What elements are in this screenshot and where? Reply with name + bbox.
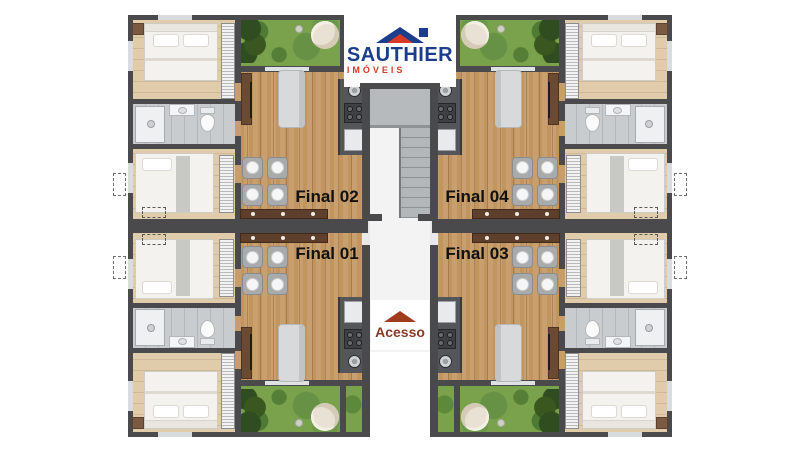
wardrobe: [566, 239, 581, 297]
stairwell-wall: [430, 89, 438, 437]
sink-bowl: [613, 107, 622, 114]
toilet-tank: [200, 107, 215, 114]
garden-shrubs: [237, 17, 267, 63]
access-label: Acesso: [375, 324, 425, 340]
unit-door-frame: [370, 214, 382, 221]
sofa-back: [495, 71, 501, 127]
pillow: [153, 405, 179, 418]
stove-burner: [438, 106, 444, 112]
wardrobe: [565, 23, 579, 99]
garden-shrubs: [237, 389, 267, 435]
bed-blanket-fold: [145, 391, 217, 394]
shower: [635, 309, 665, 346]
toilet: [199, 319, 216, 345]
pillow: [183, 405, 209, 418]
tv-screen: [250, 334, 252, 370]
shower-drain: [645, 120, 653, 128]
place-setting: [246, 161, 259, 174]
ac-indoor-unit-symbol: [142, 234, 166, 245]
roof-inner-shape: [387, 34, 413, 43]
access-arrow-icon: [384, 311, 416, 322]
decor-item: [281, 212, 285, 216]
sofa-back: [299, 71, 305, 127]
bathroom-sink: [169, 104, 195, 116]
refrigerator: [435, 129, 456, 151]
toilet: [584, 319, 601, 345]
pillow: [628, 158, 658, 171]
interior-wall: [562, 144, 672, 149]
stove-burner: [438, 340, 444, 346]
ac-condenser-symbol: [674, 256, 687, 279]
single-bed: [135, 239, 214, 299]
tv-panel: [548, 73, 559, 125]
interior-wall: [562, 303, 672, 308]
decor-item: [485, 212, 489, 216]
decor-item: [485, 236, 489, 240]
stove-burner: [447, 332, 453, 338]
garden-lounge-chair: [461, 403, 489, 431]
door-opening: [559, 316, 565, 331]
pillow: [183, 34, 209, 47]
toilet-bowl: [200, 320, 215, 338]
double-bed: [144, 23, 218, 81]
pillow: [621, 34, 647, 47]
place-setting: [246, 278, 259, 291]
decor-item: [515, 212, 519, 216]
place-setting: [516, 161, 529, 174]
double-bed: [582, 371, 656, 429]
wardrobe: [565, 353, 579, 429]
decor-item: [545, 212, 549, 216]
sideboard: [240, 233, 328, 243]
bed-throw-blanket: [610, 240, 624, 296]
place-setting: [516, 278, 529, 291]
unit-label-final-04: Final 04: [427, 187, 527, 205]
stove-burner: [438, 114, 444, 120]
garden-extension: [346, 380, 362, 437]
nightstand: [132, 23, 144, 35]
unit-label-final-01: Final 01: [277, 244, 377, 262]
toilet: [199, 107, 216, 133]
stairwell-wall: [362, 89, 370, 437]
single-bed: [586, 239, 665, 299]
sofa-back: [495, 325, 501, 381]
toilet-tank: [585, 338, 600, 345]
bed-blanket-fold: [583, 58, 655, 61]
stove-burner: [447, 340, 453, 346]
place-setting: [541, 188, 554, 201]
shower-drain: [147, 324, 155, 332]
pillow: [142, 281, 172, 294]
garden-lounge-chair: [461, 21, 489, 49]
window: [667, 41, 672, 71]
bathroom-sink: [605, 104, 631, 116]
interior-wall: [128, 144, 238, 149]
unit-door-frame: [418, 214, 430, 221]
logo-wordmark: SAUTHIER IMÓVEIS: [347, 45, 453, 75]
toilet: [584, 107, 601, 133]
door-opening: [559, 121, 565, 136]
ac-indoor-unit-symbol: [634, 207, 658, 218]
stove-burner: [447, 106, 453, 112]
garden-lounge-chair: [311, 403, 339, 431]
toilet-tank: [585, 107, 600, 114]
pillow: [628, 281, 658, 294]
window: [128, 381, 133, 411]
garden-stool: [497, 25, 505, 33]
tv-panel: [241, 73, 252, 125]
garden-wall: [454, 380, 460, 437]
wardrobe: [219, 155, 234, 213]
logo-roof-icon: [372, 27, 428, 44]
tv-panel: [241, 327, 252, 379]
bed-throw-blanket: [610, 156, 624, 212]
sofa: [278, 324, 305, 382]
window: [158, 432, 192, 437]
pillow: [591, 34, 617, 47]
ac-condenser-symbol: [674, 173, 687, 196]
stove-burner: [347, 106, 353, 112]
sink-bowl: [613, 338, 622, 345]
window: [128, 259, 133, 289]
window: [128, 163, 133, 193]
window: [608, 432, 642, 437]
shower: [635, 106, 665, 143]
double-bed: [582, 23, 656, 81]
tv-screen: [548, 334, 550, 370]
bed-headboard: [145, 420, 217, 428]
wardrobe: [221, 23, 235, 99]
staircase: [399, 128, 430, 218]
logo: SAUTHIER IMÓVEIS: [344, 15, 456, 87]
stove-burner: [447, 114, 453, 120]
single-bed: [586, 153, 665, 213]
tv-screen: [548, 82, 550, 118]
wardrobe: [219, 239, 234, 297]
bed-throw-blanket: [176, 240, 190, 296]
floor-plan-canvas: SAUTHIER IMÓVEIS Final 02 Final 01 Final…: [0, 0, 800, 450]
window: [667, 259, 672, 289]
decor-item: [515, 236, 519, 240]
unit-label-final-03: Final 03: [427, 244, 527, 262]
toilet-bowl: [585, 320, 600, 338]
sofa: [495, 324, 522, 382]
ac-condenser-symbol: [113, 173, 126, 196]
stove-burner: [438, 332, 444, 338]
ac-condenser-symbol: [113, 256, 126, 279]
place-setting: [271, 278, 284, 291]
unit-label-final-02: Final 02: [277, 187, 377, 205]
place-setting: [541, 278, 554, 291]
wardrobe: [566, 155, 581, 213]
place-setting: [271, 161, 284, 174]
logo-subtitle: IMÓVEIS: [347, 65, 451, 75]
kitchen-sink: [439, 355, 452, 368]
place-setting: [541, 251, 554, 264]
sideboard: [240, 209, 328, 219]
shower-drain: [645, 324, 653, 332]
sideboard: [472, 233, 560, 243]
pillow: [153, 34, 179, 47]
window: [128, 41, 133, 71]
party-wall: [432, 219, 672, 233]
ac-indoor-unit-symbol: [634, 234, 658, 245]
nightstand: [132, 417, 144, 429]
pillow: [142, 158, 172, 171]
garden-extension: [438, 380, 454, 437]
nightstand: [656, 23, 668, 35]
garden-stool: [497, 419, 505, 427]
bathroom-sink: [605, 336, 631, 348]
double-bed: [144, 371, 218, 429]
toilet-tank: [200, 338, 215, 345]
bathroom-sink: [169, 336, 195, 348]
bed-headboard: [145, 24, 217, 32]
sofa: [278, 70, 305, 128]
decor-item: [251, 236, 255, 240]
logo-name: SAUTHIER: [347, 45, 453, 65]
place-setting: [246, 251, 259, 264]
stair-landing: [370, 89, 430, 127]
roof-chimney: [419, 28, 428, 37]
shower: [135, 309, 165, 346]
shower-drain: [147, 120, 155, 128]
stove: [435, 329, 456, 349]
pillow: [621, 405, 647, 418]
window: [158, 15, 192, 20]
garden-stool: [295, 25, 303, 33]
decor-item: [545, 236, 549, 240]
toilet-bowl: [200, 114, 215, 132]
window: [667, 163, 672, 193]
toilet-bowl: [585, 114, 600, 132]
wardrobe: [221, 353, 235, 429]
stove-burner: [347, 332, 353, 338]
decor-item: [251, 212, 255, 216]
window: [608, 15, 642, 20]
bed-headboard: [583, 24, 655, 32]
decor-item: [311, 236, 315, 240]
stove: [435, 103, 456, 123]
sofa-back: [299, 325, 305, 381]
garden-lounge-chair: [311, 21, 339, 49]
tv-panel: [548, 327, 559, 379]
decor-item: [281, 236, 285, 240]
single-bed: [135, 153, 214, 213]
decor-item: [311, 212, 315, 216]
pillow: [591, 405, 617, 418]
bed-blanket-fold: [145, 58, 217, 61]
place-setting: [246, 188, 259, 201]
interior-wall: [128, 303, 238, 308]
shower: [135, 106, 165, 143]
kitchen-sink: [348, 355, 361, 368]
stove-burner: [347, 340, 353, 346]
place-setting: [541, 161, 554, 174]
tv-screen: [250, 82, 252, 118]
sink-bowl: [178, 107, 187, 114]
bed-headboard: [583, 420, 655, 428]
party-wall: [128, 219, 368, 233]
window: [667, 381, 672, 411]
ac-indoor-unit-symbol: [142, 207, 166, 218]
bed-throw-blanket: [176, 156, 190, 212]
nightstand: [656, 417, 668, 429]
sideboard: [472, 209, 560, 219]
bed-blanket-fold: [583, 391, 655, 394]
sofa: [495, 70, 522, 128]
sink-bowl: [178, 338, 187, 345]
garden-stool: [295, 419, 303, 427]
access-entry: Acesso: [371, 300, 429, 350]
stove-burner: [347, 114, 353, 120]
refrigerator: [435, 301, 456, 323]
